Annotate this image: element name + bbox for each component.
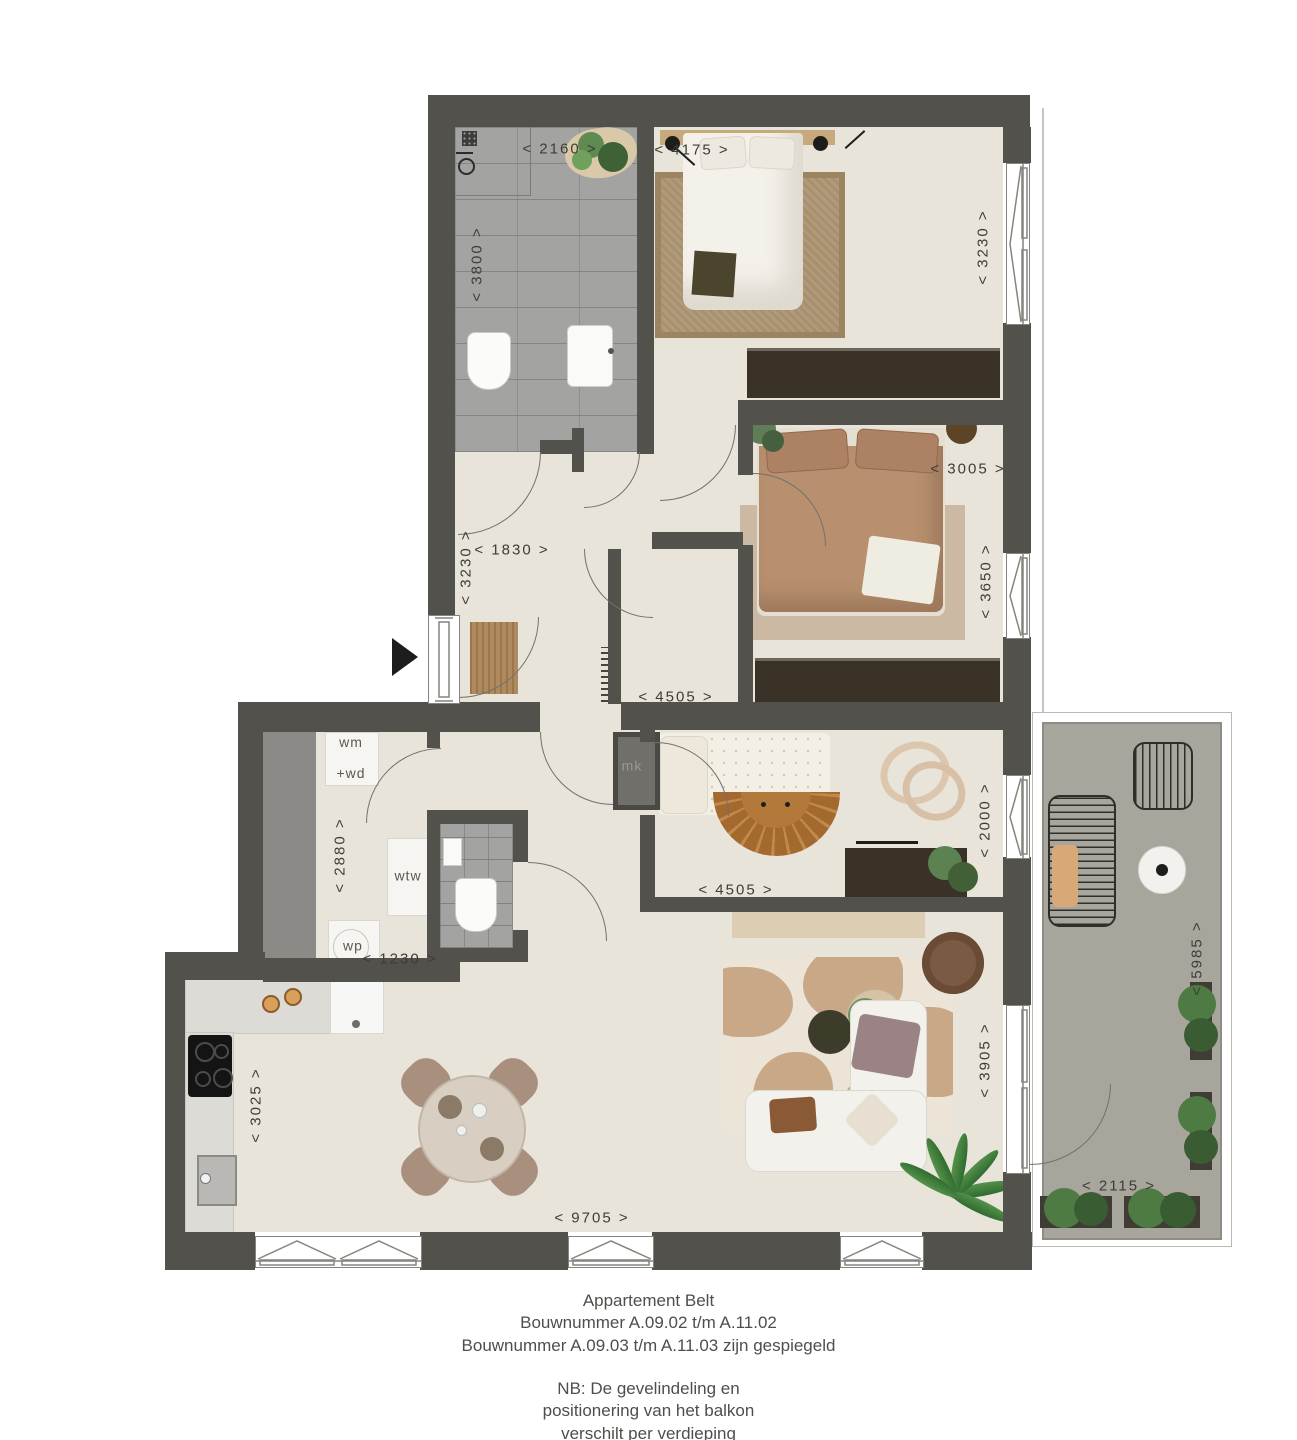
entrance-door: [428, 615, 460, 704]
cooktop: [188, 1035, 232, 1097]
plant-icon: [762, 430, 784, 452]
wall-segment: [640, 897, 1003, 912]
basin-faucet-icon: [608, 348, 614, 354]
plant-icon: [1184, 1130, 1218, 1164]
label-washer-dryer: wm +wd: [336, 720, 365, 782]
window: [840, 1236, 924, 1268]
dim-utility-width: < 1230 >: [362, 952, 437, 967]
window: [1006, 775, 1030, 859]
faucet-icon: [200, 1173, 211, 1184]
dim-bedroom2-width2: < 4505 >: [638, 690, 713, 705]
plant-icon: [948, 862, 978, 892]
wall-segment: [738, 425, 753, 475]
facade-line: [1042, 108, 1044, 712]
rug-pattern: [723, 967, 793, 1037]
entrance-arrow-icon: [392, 638, 418, 676]
dim-living-height: < 3905 >: [978, 1022, 993, 1097]
bedroom2-wardrobe: [755, 658, 1000, 706]
balcony-sofa-cushion: [1052, 845, 1078, 907]
dim-bathroom-width: < 2160 >: [522, 142, 597, 157]
dining-table: [418, 1075, 526, 1183]
wall-segment: [420, 1232, 568, 1270]
wall-segment: [173, 1232, 255, 1270]
glass: [456, 1125, 467, 1136]
sofa-throw: [851, 1013, 922, 1079]
plant-icon: [1074, 1192, 1108, 1226]
dim-balcony-height: < 5985 >: [1190, 920, 1205, 995]
burner: [213, 1068, 233, 1088]
caption-bouwnummer-1: Bouwnummer A.09.02 t/m A.11.02: [0, 1312, 1297, 1334]
coffee-cup-icon: [284, 988, 302, 1006]
label-heat-recovery: wtw: [394, 868, 421, 883]
shower-drain-icon: [462, 131, 477, 146]
caption-bouwnummer-2: Bouwnummer A.09.03 t/m A.11.03 zijn gesp…: [0, 1335, 1297, 1357]
wall-segment: [540, 440, 575, 454]
plant-icon: [1160, 1192, 1196, 1228]
shower-head-icon: [458, 158, 475, 175]
wall-segment: [1003, 1172, 1031, 1270]
wall-segment: [572, 428, 584, 472]
plant-icon: [1178, 1096, 1216, 1134]
caption-note-1: NB: De gevelindeling en: [0, 1378, 1297, 1400]
wall-segment: [1003, 857, 1031, 1005]
window: [1006, 163, 1030, 325]
bedroom2-pillow-right: [855, 428, 940, 474]
label-wd: +wd: [336, 765, 365, 781]
wall-segment: [1003, 637, 1031, 775]
wc-sink: [443, 838, 462, 866]
caption-note-2: positionering van het balkon: [0, 1400, 1297, 1422]
bedroom2-throw: [861, 535, 941, 604]
wall-segment: [640, 730, 655, 742]
caption-note-block: NB: De gevelindeling en positionering va…: [0, 1378, 1297, 1440]
caption-note-3: verschilt per verdieping: [0, 1423, 1297, 1440]
dim-living-width: < 9705 >: [554, 1211, 629, 1226]
dim-utility-height: < 2880 >: [333, 817, 348, 892]
kids-desk-lamp: [856, 841, 918, 844]
dim-bedroom1-height: < 3230 >: [976, 209, 991, 284]
wall-segment: [427, 824, 440, 962]
wall-segment: [427, 732, 440, 748]
wall-segment: [238, 732, 263, 960]
window: [568, 1236, 654, 1268]
glass: [472, 1103, 487, 1118]
bedroom1-throw-blanket: [692, 251, 737, 298]
bedroom1-pillow-right: [748, 136, 796, 170]
wall-segment: [428, 127, 455, 615]
dim-bathroom-height: < 3800 >: [470, 226, 485, 301]
wall-segment: [165, 952, 265, 980]
window: [1006, 553, 1030, 639]
faucet-icon: [352, 1020, 360, 1028]
window: [255, 1236, 422, 1268]
dim-balcony-width: < 2115 >: [1082, 1179, 1156, 1194]
dim-kidsroom-height: < 2000 >: [978, 782, 993, 857]
wall-segment: [652, 532, 743, 549]
dim-hall-width: < 1830 >: [474, 543, 549, 558]
dim-kidsroom-width: < 4505 >: [698, 883, 773, 898]
toilet: [467, 332, 511, 390]
plant-icon: [598, 142, 628, 172]
caption-title: Appartement Belt: [0, 1290, 1297, 1312]
plate: [480, 1137, 504, 1161]
bedroom1-wardrobe: [747, 348, 1000, 398]
washbasin: [567, 325, 613, 387]
dim-hall-height: < 3230 >: [459, 529, 474, 604]
plate: [438, 1095, 462, 1119]
floor-plan-page: < 2160 > < 3800 > < 4175 > < 3230 > < 30…: [0, 0, 1297, 1440]
wall-segment: [1003, 323, 1031, 553]
caption-block: Appartement Belt Bouwnummer A.09.02 t/m …: [0, 1290, 1297, 1357]
wall-lamp-icon: [813, 136, 828, 151]
plant-icon: [1184, 1018, 1218, 1052]
cup-icon: [1156, 864, 1168, 876]
dim-bedroom1-width: < 4175 >: [654, 143, 729, 158]
wall-segment: [1003, 127, 1031, 163]
wall-segment: [428, 95, 1030, 127]
burner: [195, 1042, 215, 1062]
coffee-cup-icon: [262, 995, 280, 1013]
tv-cabinet: [732, 908, 925, 938]
shower-arm-icon: [456, 152, 473, 154]
wc-toilet: [455, 878, 497, 932]
wall-segment: [652, 1232, 840, 1270]
shaft: [263, 732, 316, 972]
sofa-cushion-brown: [769, 1096, 817, 1133]
lion-face: [741, 792, 811, 828]
wall-segment: [165, 980, 185, 1270]
label-meter-closet: mk: [622, 758, 643, 773]
burner: [195, 1071, 211, 1087]
lion-eye: [785, 802, 790, 807]
wall-segment: [427, 810, 528, 824]
wall-segment: [513, 824, 528, 862]
dim-kitchen-height: < 3025 >: [249, 1067, 264, 1142]
dim-bedroom2-width: < 3005 >: [930, 462, 1005, 477]
wall-segment: [738, 545, 753, 712]
label-heat-pump: wp: [343, 938, 363, 953]
burner: [214, 1044, 229, 1059]
wall-segment: [621, 702, 1003, 730]
balcony-table: [1138, 846, 1186, 894]
coffee-table: [808, 1010, 852, 1054]
lion-eye: [761, 802, 766, 807]
wall-segment: [637, 127, 654, 454]
balcony-chair: [1133, 742, 1193, 810]
label-wm: wm: [339, 735, 363, 751]
dim-bedroom2-height: < 3650 >: [979, 543, 994, 618]
wall-segment: [455, 702, 540, 732]
wall-segment: [738, 400, 1003, 425]
balcony-door: [1006, 1005, 1030, 1174]
